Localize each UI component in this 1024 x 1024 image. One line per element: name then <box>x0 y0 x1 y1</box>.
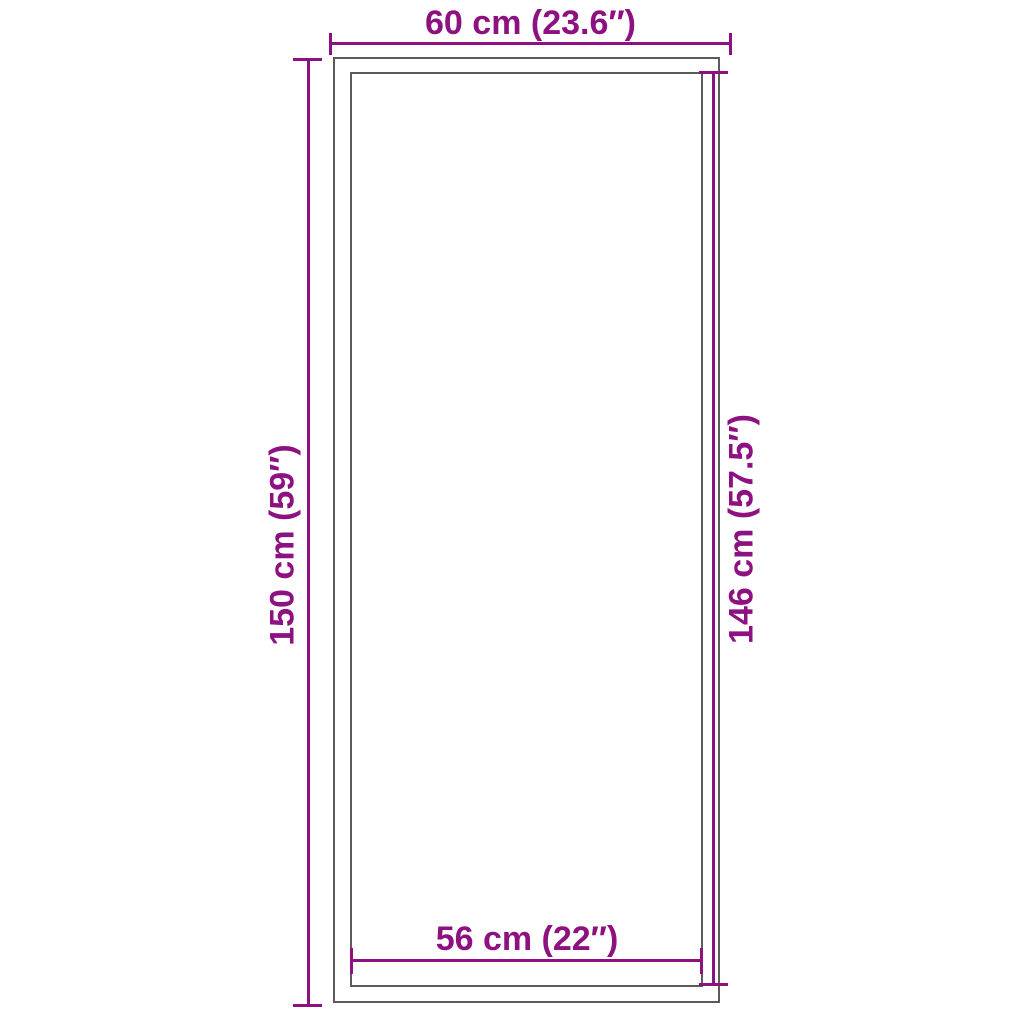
left-dimension-tick-bottom <box>293 1004 322 1007</box>
bottom-dimension-label: 56 cm (22″) <box>352 920 702 959</box>
right-dimension-tick-top <box>699 71 728 74</box>
right-dimension-tick-bottom <box>699 983 728 986</box>
mat-inner-edge <box>350 72 703 987</box>
left-dimension-line <box>307 59 310 1007</box>
top-dimension-label: 60 cm (23.6″) <box>330 4 731 43</box>
left-dimension-tick-top <box>293 58 322 61</box>
bottom-dimension-line <box>351 959 702 962</box>
right-dimension-label: 146 cm (57.5″) <box>723 414 762 644</box>
dimension-diagram: 60 cm (23.6″) 150 cm (59″) 146 cm (57.5″… <box>0 0 1024 1024</box>
right-dimension-line <box>712 73 715 985</box>
left-dimension-label: 150 cm (59″) <box>264 444 303 646</box>
